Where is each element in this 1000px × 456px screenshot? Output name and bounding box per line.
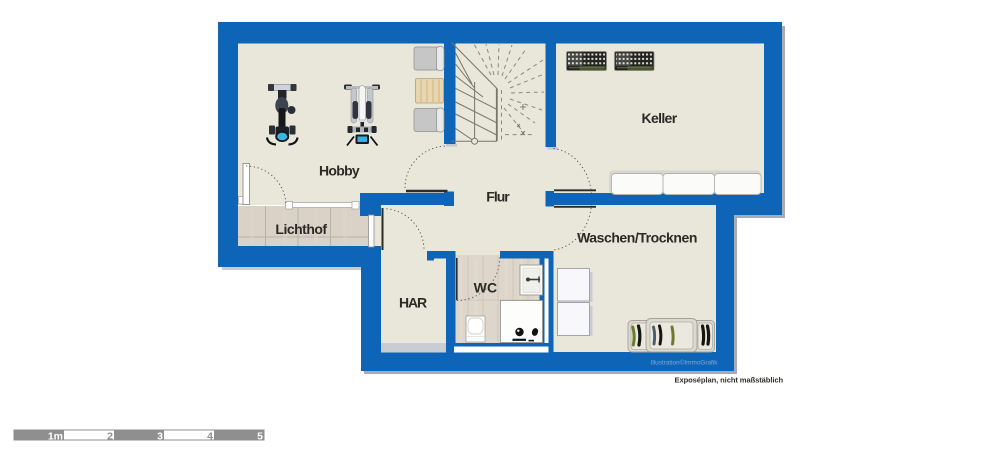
svg-text:5: 5	[257, 431, 263, 443]
svg-text:1m: 1m	[48, 431, 63, 443]
svg-text:4: 4	[207, 431, 213, 443]
svg-text:Hobby: Hobby	[319, 163, 360, 179]
svg-text:Flur: Flur	[486, 189, 510, 205]
svg-text:WC: WC	[474, 280, 498, 296]
svg-text:Exposéplan, nicht maßstäblich: Exposéplan, nicht maßstäblich	[675, 376, 784, 385]
svg-text:Waschen/Trocknen: Waschen/Trocknen	[577, 230, 697, 246]
svg-text:Keller: Keller	[641, 110, 677, 126]
svg-text:HAR: HAR	[399, 295, 427, 311]
svg-text:Lichthof: Lichthof	[275, 221, 327, 237]
svg-text:Illustration©ImmoGrafik: Illustration©ImmoGrafik	[651, 359, 719, 367]
svg-text:2: 2	[107, 431, 113, 443]
svg-text:3: 3	[157, 431, 163, 443]
